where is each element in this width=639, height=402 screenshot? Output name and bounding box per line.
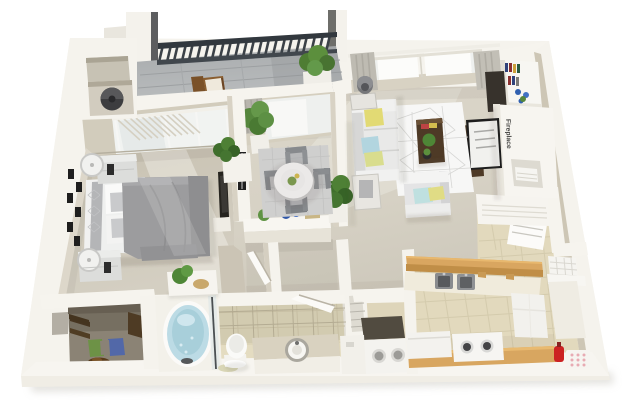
svg-text:Fireplace: Fireplace (504, 119, 512, 149)
